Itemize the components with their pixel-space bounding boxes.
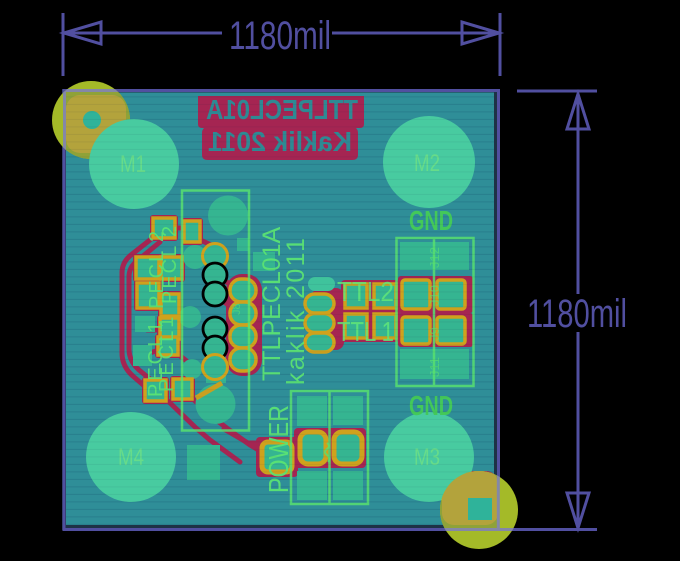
svg-text:1180mil: 1180mil (229, 14, 331, 58)
svg-text:1180mil: 1180mil (527, 292, 627, 336)
